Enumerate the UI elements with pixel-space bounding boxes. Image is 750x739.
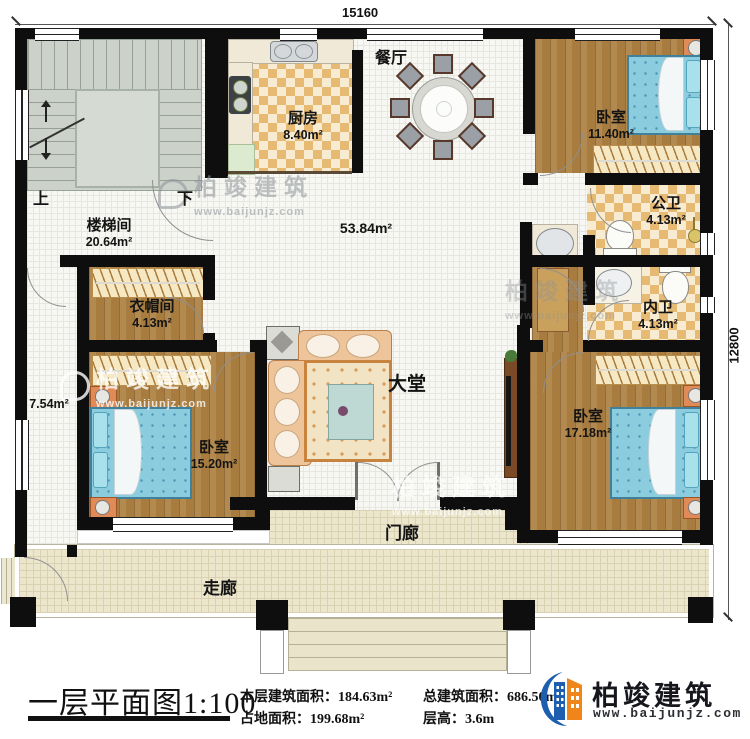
wall [520, 255, 713, 267]
pillow [684, 412, 699, 448]
kitchen-floor-edge [228, 171, 352, 174]
window-sill [77, 530, 270, 544]
stair-arrow-down-head [41, 153, 51, 160]
open-area-label: 53.84m² [340, 221, 392, 236]
pillow [686, 60, 701, 93]
wall [205, 39, 228, 178]
stair-treads-left [28, 89, 75, 190]
stairs-down-label: 下 [177, 192, 193, 209]
wall [255, 340, 267, 530]
stair-treads-top [28, 40, 201, 89]
wall [352, 50, 363, 173]
room-label-staircase: 楼梯间20.64m² [86, 218, 133, 250]
brand-logo-icon [536, 670, 590, 728]
dimension-right: 12800 [727, 327, 742, 363]
wardrobe-icon [92, 355, 212, 386]
wardrobe-icon [595, 355, 702, 385]
wall [317, 28, 367, 39]
room-label-porch: 门廊 [385, 525, 419, 543]
wall [79, 28, 228, 39]
wall [585, 173, 713, 185]
sink-icon [596, 269, 632, 297]
bed-sheet [648, 409, 676, 495]
wall [15, 160, 27, 420]
corner-post [10, 597, 36, 627]
chair-icon [433, 54, 453, 74]
pillow [93, 412, 108, 448]
window [575, 28, 660, 41]
wardrobe-rail [597, 160, 700, 162]
title-block: 一层平面图1:100 本层建筑面积：184.63m² 占地面积：199.68m²… [0, 660, 750, 739]
wardrobe-rail [599, 369, 698, 371]
dimension-top: 15160 [342, 5, 378, 20]
stair-arrow-up-head [41, 100, 51, 107]
pillow [686, 97, 701, 128]
stat-footprint-area: 占地面积：199.68m² [240, 708, 364, 728]
room-label-cloakroom: 衣帽间4.13m² [129, 299, 174, 331]
stair-treads-right [160, 89, 201, 190]
chair-icon [474, 98, 494, 118]
wall [230, 497, 355, 510]
stove-burner [233, 97, 248, 112]
coffee-table-decor [338, 406, 348, 416]
wall [523, 173, 538, 185]
room-label-hall: 大堂 [388, 375, 426, 395]
pillow [93, 452, 108, 488]
porch-column [256, 600, 288, 630]
window [113, 517, 233, 532]
dimension-line-top [15, 24, 715, 25]
dining-table-center [436, 101, 452, 117]
stairs-up-label: 上 [33, 192, 49, 209]
wall [77, 340, 217, 352]
wardrobe-rail [97, 370, 208, 372]
wall [517, 325, 530, 497]
corner-table-icon [268, 466, 300, 492]
coffee-table-icon [328, 384, 374, 440]
wall [700, 28, 713, 60]
wall [682, 530, 713, 543]
chair-icon [433, 140, 453, 160]
window [700, 60, 715, 130]
room-label-public-bath: 公卫4.13m² [646, 196, 686, 228]
stair-landing [75, 89, 160, 188]
wall [700, 313, 713, 400]
plant-icon [505, 350, 517, 362]
wall [77, 255, 89, 530]
room-label-bedroom-right: 卧室17.18m² [565, 409, 612, 441]
wall [228, 28, 280, 39]
sofa-cushion [346, 334, 380, 358]
dimension-line-right [728, 24, 729, 620]
floor-plan-canvas: 15160 12800 [0, 0, 750, 739]
window [15, 90, 29, 160]
stove-burner [233, 80, 248, 95]
window [35, 28, 79, 41]
kitchen-sink-bowl [295, 44, 313, 59]
corridor-floor [15, 545, 713, 617]
room-label-bedroom-left: 卧室15.20m² [191, 440, 238, 472]
wardrobe-rail [96, 282, 199, 284]
wardrobe-icon [92, 268, 204, 298]
window [558, 530, 682, 545]
plan-title-underline [28, 716, 230, 721]
window [367, 28, 483, 41]
room-label-kitchen: 厨房8.40m² [283, 111, 323, 143]
bed-sheet [114, 409, 142, 495]
lamp-icon [95, 389, 110, 404]
window [700, 400, 715, 480]
sofa-cushion [274, 366, 300, 394]
shower-stem [693, 217, 695, 230]
corner-post [688, 597, 713, 623]
wall [505, 497, 530, 530]
stat-floor-area: 本层建筑面积：184.63m² [240, 686, 392, 706]
window [700, 233, 715, 255]
pillow [684, 452, 699, 488]
room-label-bedroom-top: 卧室11.40m² [588, 110, 634, 142]
wall [583, 267, 595, 305]
kitchen-sink-bowl [274, 44, 292, 59]
porch-column [503, 600, 535, 630]
brand-url: www.baijunjz.com [593, 706, 742, 721]
wall [517, 530, 558, 543]
wall [15, 545, 27, 557]
tv-icon [506, 376, 511, 466]
window [280, 28, 317, 41]
stat-storey-height: 层高：3.6m [423, 708, 494, 728]
wall [15, 28, 27, 90]
chair-icon [390, 98, 410, 118]
wall [483, 28, 575, 39]
room-label-dining: 餐厅 [375, 51, 407, 68]
window [700, 297, 715, 313]
bed-sheet [658, 57, 684, 131]
window [15, 420, 29, 490]
wall [203, 255, 215, 300]
wall [523, 39, 535, 134]
wall [520, 222, 532, 328]
lamp-icon [95, 500, 110, 515]
sofa-cushion [274, 398, 300, 426]
room-label-corridor: 走廊 [203, 580, 237, 598]
sofa-cushion [306, 334, 340, 358]
sofa-cushion [274, 430, 300, 458]
wall [67, 545, 77, 557]
side-area-label: 7.54m² [29, 398, 69, 411]
wall [583, 340, 713, 352]
room-label-inner-bath: 内卫4.13m² [638, 300, 678, 332]
